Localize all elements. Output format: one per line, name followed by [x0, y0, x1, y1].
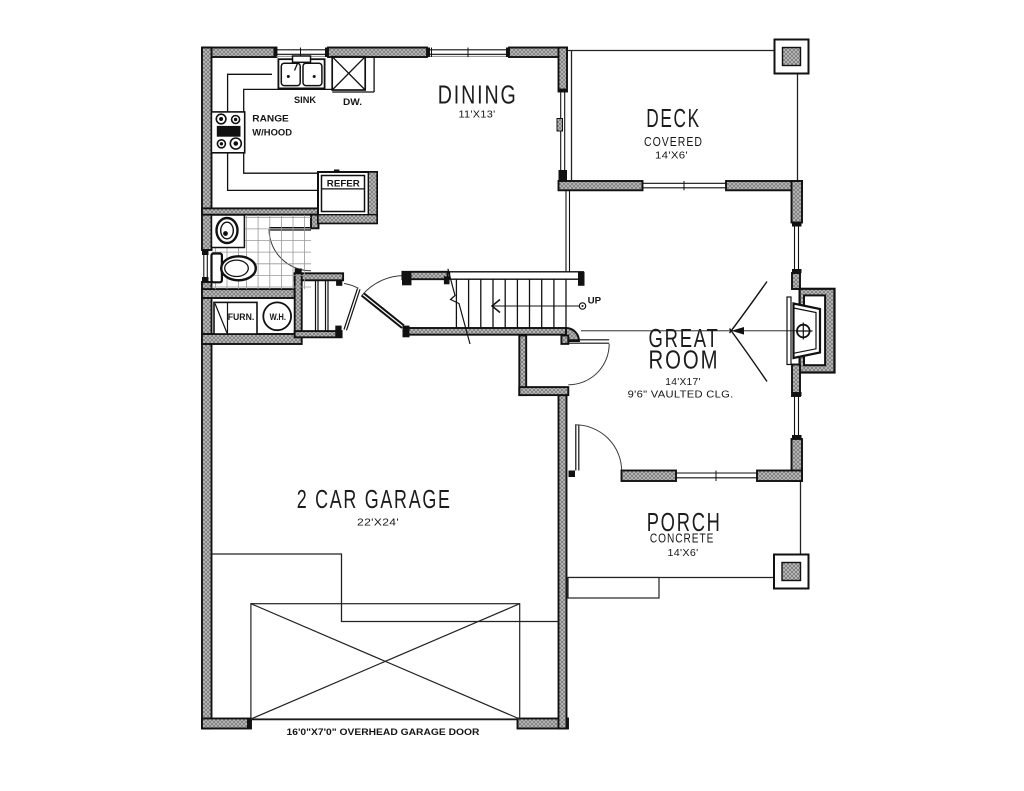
svg-text:RANGE: RANGE: [252, 114, 288, 125]
svg-text:9'6" VAULTED CLG.: 9'6" VAULTED CLG.: [628, 389, 734, 401]
svg-text:22'X24': 22'X24': [357, 517, 399, 529]
svg-text:2 CAR GARAGE: 2 CAR GARAGE: [297, 484, 452, 514]
svg-text:COVERED: COVERED: [644, 135, 703, 149]
svg-text:11'X13': 11'X13': [459, 109, 496, 121]
svg-text:SINK: SINK: [294, 95, 316, 106]
svg-text:CONCRETE: CONCRETE: [650, 532, 715, 546]
svg-text:UP: UP: [588, 296, 602, 307]
svg-text:REFER: REFER: [327, 179, 360, 190]
svg-text:16'0"X7'0" OVERHEAD GARAGE DOO: 16'0"X7'0" OVERHEAD GARAGE DOOR: [287, 727, 480, 738]
svg-text:DINING: DINING: [438, 80, 518, 110]
svg-text:14'X6': 14'X6': [668, 547, 699, 559]
svg-text:W.H.: W.H.: [270, 312, 286, 323]
svg-text:14'X17': 14'X17': [665, 376, 701, 388]
svg-text:DW.: DW.: [343, 97, 362, 108]
svg-text:ROOM: ROOM: [649, 345, 720, 375]
svg-text:14'X6': 14'X6': [655, 150, 688, 162]
svg-text:W/HOOD: W/HOOD: [252, 128, 292, 139]
svg-text:DECK: DECK: [646, 103, 701, 133]
svg-text:FURN.: FURN.: [228, 312, 255, 323]
